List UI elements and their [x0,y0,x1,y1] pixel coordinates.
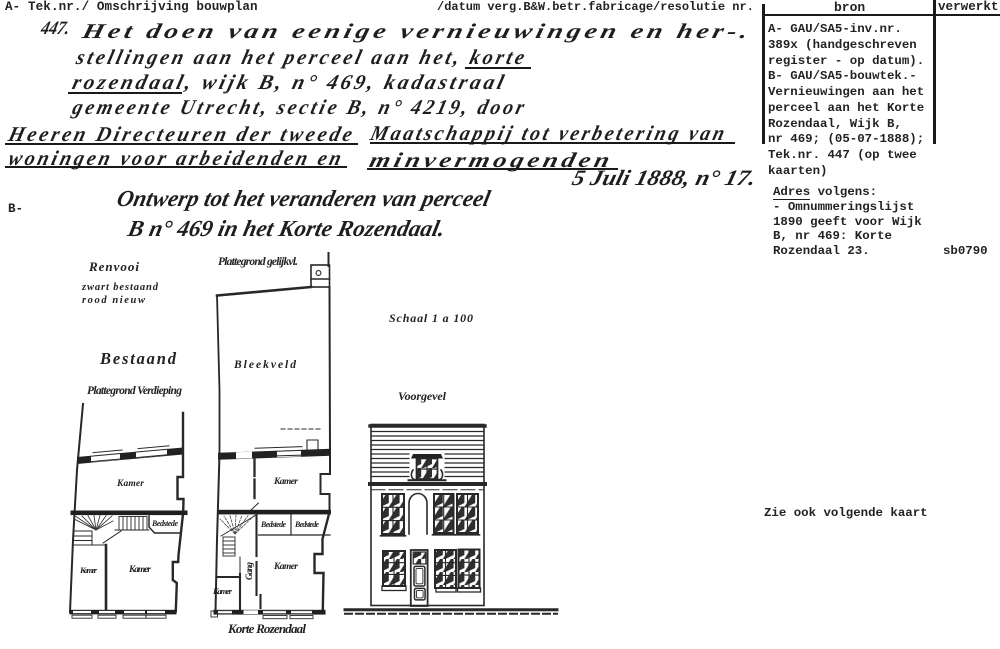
svg-text:Bedstede: Bedstede [260,520,286,529]
svg-text:Korte Rozendaal: Korte Rozendaal [227,621,306,636]
svg-text:Voorgevel: Voorgevel [398,389,447,403]
svg-text:Gang: Gang [244,562,254,581]
svg-text:Kamer: Kamer [212,586,233,596]
svg-text:Bedstede: Bedstede [151,519,178,528]
svg-text:Kamer: Kamer [79,565,98,575]
svg-text:Bedstede: Bedstede [294,520,319,529]
svg-text:Schaal 1 a 100: Schaal 1 a 100 [389,311,473,325]
svg-text:Kamer: Kamer [116,479,144,489]
svg-text:Kamer: Kamer [128,565,151,575]
svg-text:Bleekveld: Bleekveld [233,359,296,371]
svg-text:Kamer: Kamer [273,477,298,487]
svg-text:rood nieuw: rood nieuw [82,295,146,306]
svg-text:Plattegrond gelijkvl.: Plattegrond gelijkvl. [218,256,298,268]
svg-text:Plattegrond Verdieping: Plattegrond Verdieping [87,385,182,397]
svg-text:zwart bestaand: zwart bestaand [81,282,159,293]
svg-text:Kamer: Kamer [273,562,298,572]
svg-text:Renvooi: Renvooi [88,259,139,274]
svg-text:Bestaand: Bestaand [99,349,177,368]
